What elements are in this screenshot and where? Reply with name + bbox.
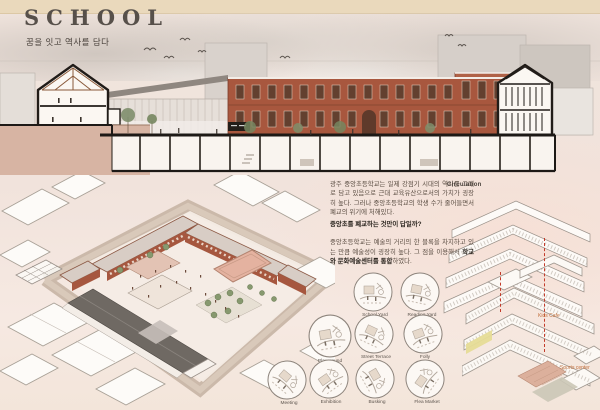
section-cut-dashed-line bbox=[544, 238, 545, 352]
folly-sketch bbox=[403, 314, 443, 354]
vignette-street-terrace: Street Terrace bbox=[354, 314, 398, 360]
vignette-playground: Playground bbox=[308, 314, 352, 364]
vignette-busking: Busking bbox=[355, 359, 399, 405]
vignette-meeting: Meeting bbox=[267, 360, 311, 406]
paragraph-2-tail: 하였다. bbox=[392, 258, 411, 265]
vignette-exhibition: Exhibition bbox=[309, 359, 353, 405]
left-section-building bbox=[38, 65, 120, 125]
reading-yard-sketch bbox=[400, 272, 440, 312]
busking-sketch bbox=[355, 359, 395, 399]
project-description: 광주 중앙초등학교는 일제 강점기 시대의 역사를 그대로 담고 있음으로 근대… bbox=[330, 180, 474, 267]
program-axonometric bbox=[462, 252, 600, 410]
school-yard-sketch bbox=[353, 272, 393, 312]
paragraph-2-lead: 중앙초등학교는 예술의 거리의 한 블록을 차지하고 있는 만큼 예술성이 굉장… bbox=[330, 239, 474, 255]
vignette-school-yard: School Yard bbox=[353, 272, 397, 318]
page-title: SCHOOL bbox=[24, 5, 169, 30]
vignette-label: Busking bbox=[355, 400, 399, 405]
playground-sketch bbox=[308, 314, 352, 358]
flea-market-sketch bbox=[405, 359, 445, 399]
birds-icon bbox=[140, 28, 480, 68]
street-terrace-sketch bbox=[354, 314, 394, 354]
vignette-label: Meeting bbox=[267, 401, 311, 406]
vignette-flea-market: Flea Market bbox=[405, 359, 449, 405]
presentation-board: SCHOOL 꿈을 잇고 역사를 담다 bbox=[0, 0, 600, 410]
vignette-label: Exhibition bbox=[309, 400, 353, 405]
brick-school-elevation bbox=[228, 73, 520, 135]
sports-center-label: Sports center bbox=[560, 365, 590, 371]
kids-cafe-label: Kids Cafe bbox=[538, 313, 560, 319]
meeting-sketch bbox=[267, 360, 307, 400]
vignette-reading-yard: Reading Yard bbox=[400, 272, 444, 318]
page-subtitle: 꿈을 잇고 역사를 담다 bbox=[26, 36, 109, 48]
arched-entrance bbox=[362, 110, 376, 135]
circulation-title: Circulation bbox=[447, 182, 482, 188]
secondary-dashed-line bbox=[500, 272, 501, 312]
vignette-folly: Folly bbox=[403, 314, 447, 360]
description-paragraph-2: 중앙초등학교는 예술의 거리의 한 블록을 차지하고 있는 만큼 예술성이 굉장… bbox=[330, 238, 474, 266]
vignette-label: Flea Market bbox=[405, 400, 449, 405]
exhibition-sketch bbox=[309, 359, 349, 399]
description-question: 중앙초를 폐교하는 것만이 답일까? bbox=[330, 220, 474, 229]
